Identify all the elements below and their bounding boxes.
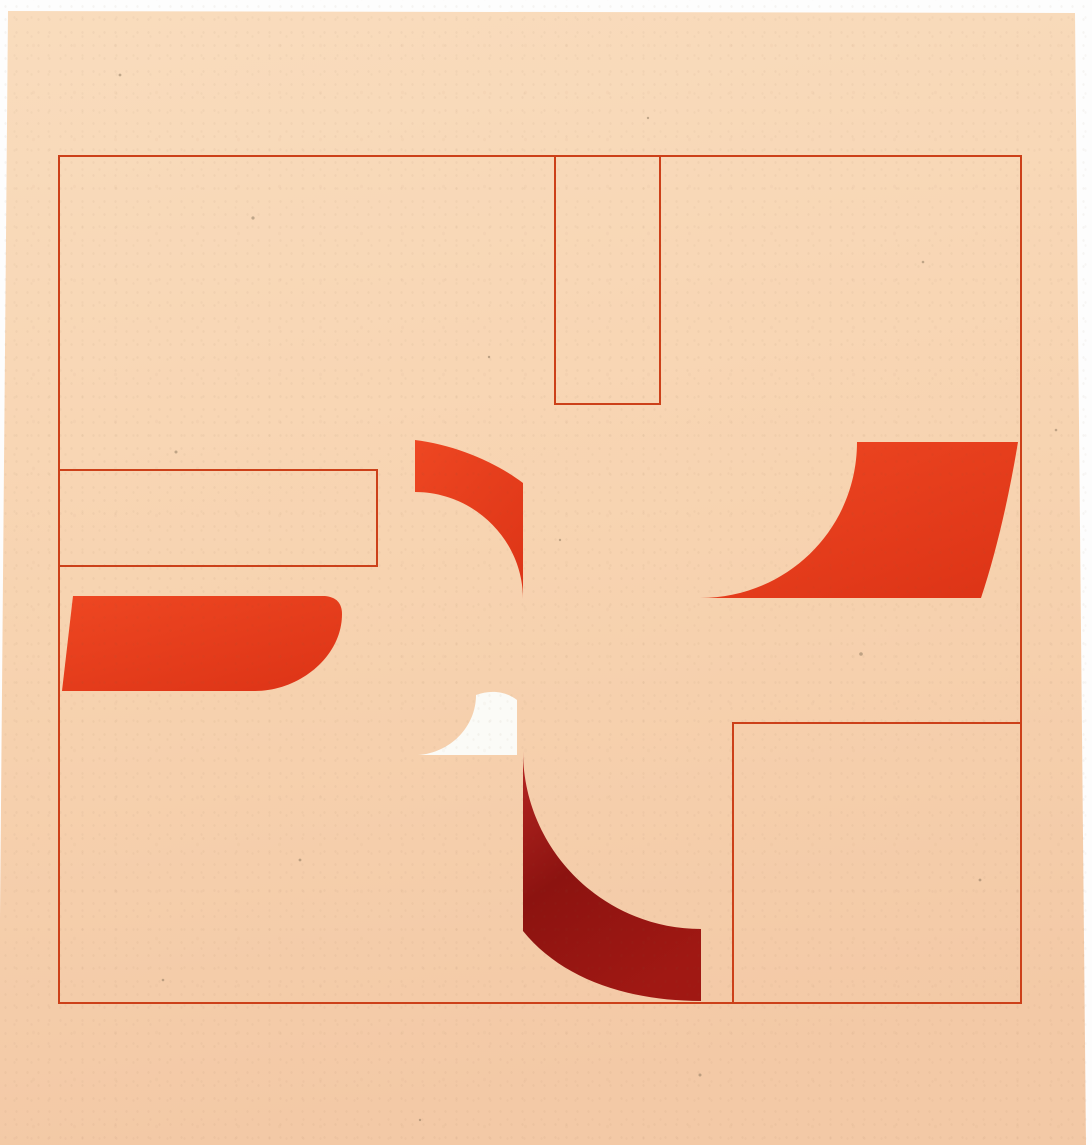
left-red-band: [62, 596, 342, 691]
artwork-canvas: [0, 0, 1092, 1145]
artwork-photo: [0, 0, 1092, 1145]
